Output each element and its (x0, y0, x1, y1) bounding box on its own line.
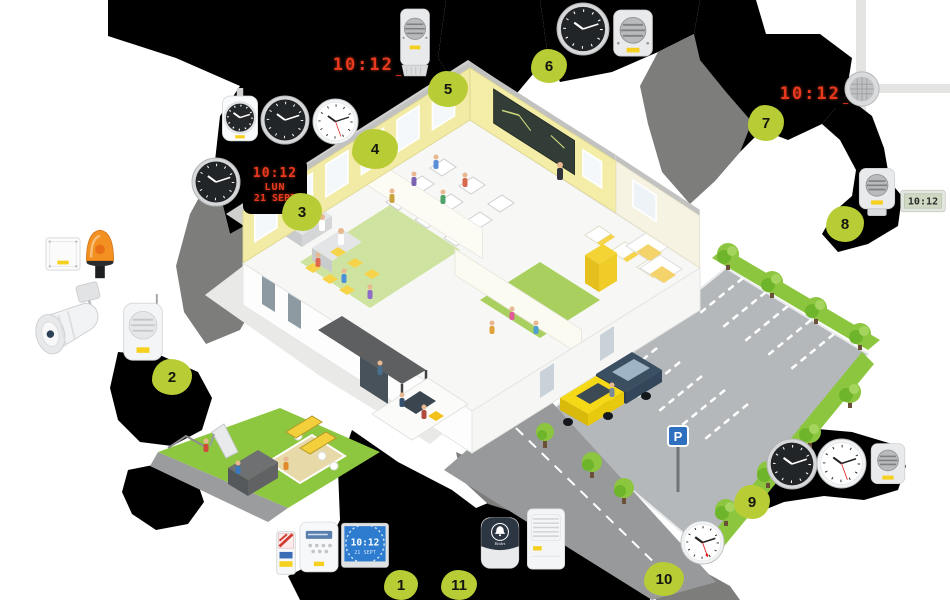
product-led-digital-clock: 10:12_ (338, 50, 396, 80)
product-junction-box (44, 236, 82, 272)
hotspot-marker-1[interactable]: 1 (384, 570, 418, 600)
product-master-clock-control (297, 518, 341, 576)
product-ceiling-speaker (843, 70, 881, 108)
hotspot-marker-5[interactable]: 5 (428, 71, 468, 107)
product-horn-loudspeaker (22, 272, 122, 370)
product-wall-speaker (610, 8, 656, 60)
hotspot-marker-10[interactable]: 10 (644, 562, 684, 596)
svg-text:10:12: 10:12 (351, 537, 380, 548)
product-led-digital-clock: 10:12_ (784, 80, 844, 108)
product-wall-speaker-wireless (120, 292, 166, 364)
product-double-sided-clock (216, 88, 264, 152)
svg-text:10:12: 10:12 (908, 197, 938, 208)
product-lcd-calendar-clock-blue: 10:12 21 SEPT (340, 520, 390, 572)
hotspot-marker-6[interactable]: 6 (531, 49, 567, 83)
hotspot-marker-9[interactable]: 9 (734, 485, 770, 519)
product-analog-clock-white (312, 98, 359, 145)
hotspot-marker-2[interactable]: 2 (152, 359, 192, 395)
hotspot-marker-8[interactable]: 8 (826, 206, 864, 242)
svg-text:21 SEPT: 21 SEPT (354, 550, 376, 556)
product-analog-clock-black (766, 438, 818, 490)
hotspot-marker-4[interactable]: 4 (352, 129, 398, 169)
product-lcd-digital-clock: 10:12 (900, 188, 946, 214)
product-radio-transmitter (272, 524, 300, 578)
hotspot-marker-7[interactable]: 7 (748, 105, 784, 141)
product-analog-clock-black (260, 95, 310, 145)
product-wall-speaker (856, 166, 898, 218)
svg-text:P: P (674, 429, 683, 444)
product-wall-speaker (868, 440, 908, 492)
product-wall-speaker (396, 6, 434, 82)
school-products-illustration: P (0, 0, 950, 600)
svg-text:Bodet: Bodet (495, 541, 506, 546)
product-analog-clock-black (556, 2, 610, 56)
hotspot-marker-3[interactable]: 3 (282, 193, 322, 231)
product-analog-clock-white (680, 520, 725, 565)
product-siren-box (522, 506, 570, 572)
product-analog-clock-black (191, 157, 241, 207)
product-analog-clock-white (816, 438, 867, 489)
product-bell-sounder: Bodet (476, 512, 524, 574)
hotspot-marker-11[interactable]: 11 (441, 570, 477, 600)
